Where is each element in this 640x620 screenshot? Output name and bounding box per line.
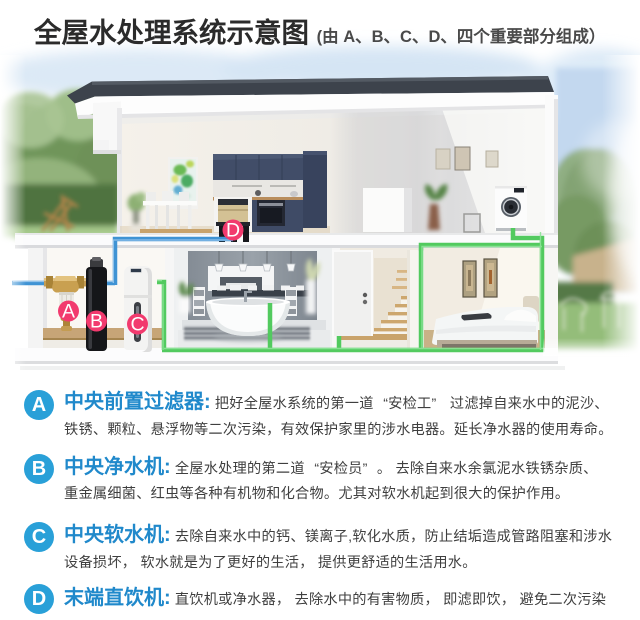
svg-text:A: A — [62, 301, 75, 323]
svg-text:B: B — [90, 311, 103, 333]
svg-text:C: C — [130, 314, 144, 336]
svg-text:D: D — [226, 220, 240, 242]
